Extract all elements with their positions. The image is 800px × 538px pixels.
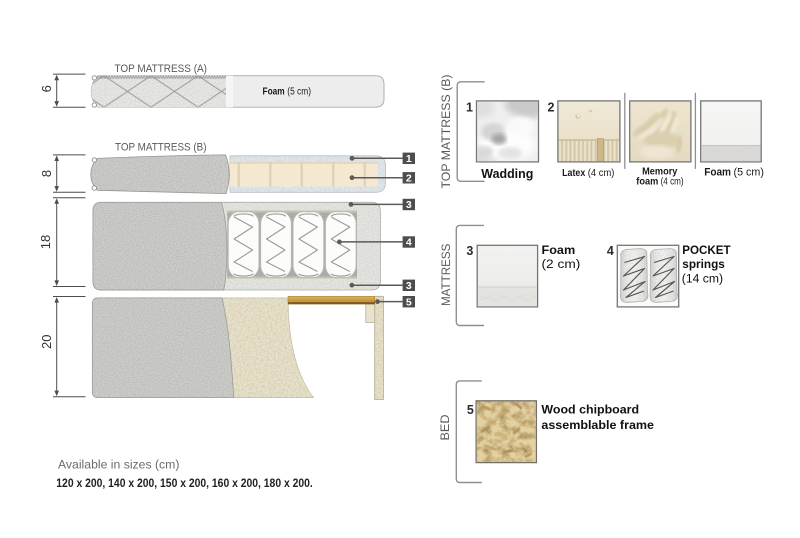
svg-text:Latex: Latex [562, 168, 586, 179]
svg-text:assemblable frame: assemblable frame [541, 418, 654, 432]
svg-text:5: 5 [467, 403, 474, 417]
svg-text:3: 3 [466, 244, 473, 258]
svg-text:foam: foam [636, 176, 658, 187]
svg-text:(14 cm): (14 cm) [682, 273, 723, 285]
svg-text:Foam: Foam [263, 86, 285, 97]
svg-text:TOP MATTRESS (A): TOP MATTRESS (A) [115, 63, 208, 75]
svg-text:Foam: Foam [704, 166, 731, 178]
svg-text:(5 cm): (5 cm) [287, 86, 311, 97]
svg-text:20: 20 [39, 335, 54, 349]
svg-text:6: 6 [39, 85, 54, 92]
svg-text:Foam: Foam [542, 243, 576, 257]
svg-text:POCKET: POCKET [682, 243, 731, 257]
svg-text:1: 1 [406, 153, 412, 165]
svg-text:Available in sizes (cm): Available in sizes (cm) [58, 458, 179, 472]
svg-text:18: 18 [38, 235, 53, 249]
svg-text:3: 3 [406, 280, 412, 292]
svg-text:8: 8 [39, 170, 54, 177]
svg-text:TOP MATTRESS (B): TOP MATTRESS (B) [439, 75, 453, 189]
svg-text:4: 4 [406, 237, 412, 249]
svg-text:Wadding: Wadding [481, 166, 533, 181]
svg-text:springs: springs [682, 257, 725, 271]
svg-text:3: 3 [406, 199, 412, 211]
svg-text:Wood chipboard: Wood chipboard [541, 402, 639, 416]
svg-text:120 x 200, 140 x 200, 150 x 20: 120 x 200, 140 x 200, 150 x 200, 160 x 2… [56, 476, 313, 490]
svg-text:BED: BED [438, 414, 452, 440]
svg-text:(4 cm): (4 cm) [661, 176, 684, 187]
svg-text:2: 2 [406, 172, 412, 184]
svg-text:TOP MATTRESS (B): TOP MATTRESS (B) [115, 141, 207, 153]
svg-text:1: 1 [466, 101, 473, 115]
svg-text:(2 cm): (2 cm) [542, 259, 581, 271]
svg-text:5: 5 [406, 296, 412, 308]
svg-text:MATTRESS: MATTRESS [439, 244, 453, 306]
svg-text:(4 cm): (4 cm) [588, 168, 615, 179]
svg-text:4: 4 [607, 244, 614, 258]
svg-text:(5 cm): (5 cm) [734, 166, 764, 178]
svg-text:2: 2 [548, 101, 555, 115]
